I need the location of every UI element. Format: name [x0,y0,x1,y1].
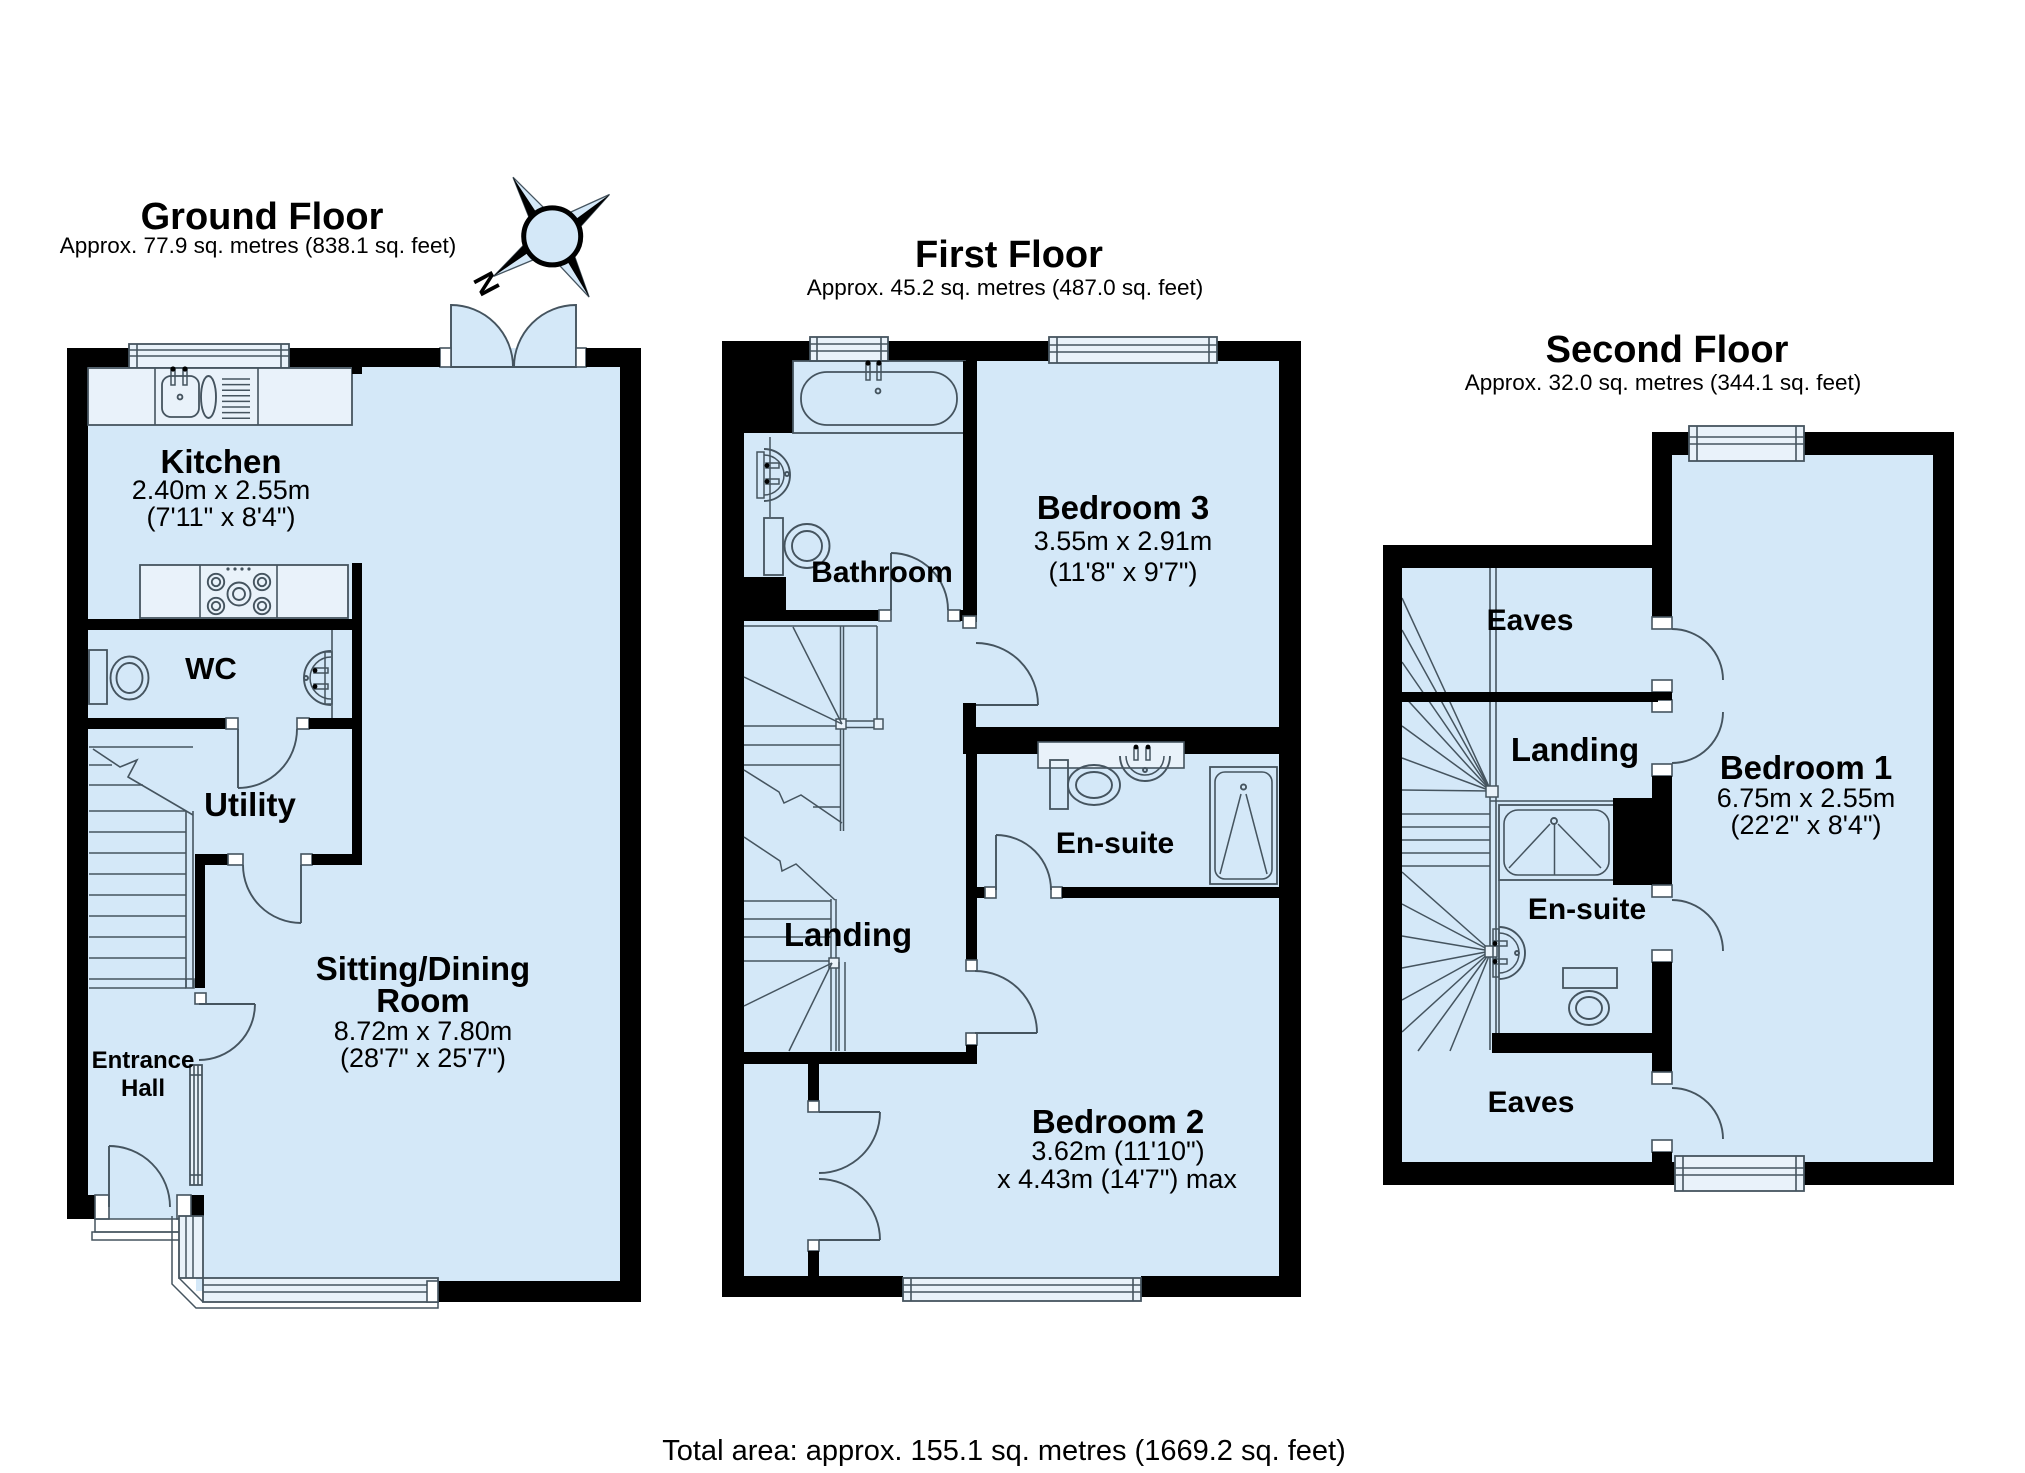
svg-text:Entrance: Entrance [92,1047,195,1074]
svg-text:En-suite: En-suite [1528,893,1646,926]
svg-text:Total area: approx. 155.1 sq.: Total area: approx. 155.1 sq. metres (16… [662,1435,1346,1467]
svg-text:WC: WC [185,651,237,686]
svg-text:Room: Room [376,982,470,1019]
svg-text:(7'11" x 8'4"): (7'11" x 8'4") [146,502,295,532]
svg-text:Eaves: Eaves [1488,1086,1575,1119]
svg-text:3.62m (11'10"): 3.62m (11'10") [1031,1136,1204,1166]
svg-text:Bathroom: Bathroom [811,556,953,589]
svg-text:(28'7" x 25'7"): (28'7" x 25'7") [340,1043,506,1073]
svg-text:Second Floor: Second Floor [1546,329,1789,371]
svg-text:3.55m x 2.91m: 3.55m x 2.91m [1034,526,1213,556]
svg-text:(11'8" x 9'7"): (11'8" x 9'7") [1048,557,1197,587]
svg-text:Bedroom 1: Bedroom 1 [1720,749,1892,786]
svg-text:Hall: Hall [121,1075,165,1102]
svg-text:6.75m x 2.55m: 6.75m x 2.55m [1717,783,1896,813]
svg-text:Approx. 45.2 sq. metres (487.0: Approx. 45.2 sq. metres (487.0 sq. feet) [807,275,1203,300]
svg-text:First Floor: First Floor [915,234,1103,276]
svg-text:Landing: Landing [1511,731,1639,768]
svg-text:(22'2" x 8'4"): (22'2" x 8'4") [1730,810,1881,840]
svg-text:Approx. 77.9 sq. metres (838.1: Approx. 77.9 sq. metres (838.1 sq. feet) [60,233,456,258]
svg-text:x 4.43m (14'7") max: x 4.43m (14'7") max [997,1164,1237,1194]
svg-text:Landing: Landing [784,916,912,953]
svg-text:Bedroom 2: Bedroom 2 [1032,1103,1204,1140]
svg-text:2.40m x 2.55m: 2.40m x 2.55m [132,475,311,505]
svg-text:Bedroom 3: Bedroom 3 [1037,489,1209,526]
svg-text:Eaves: Eaves [1487,604,1574,637]
svg-text:8.72m x 7.80m: 8.72m x 7.80m [334,1016,513,1046]
svg-text:En-suite: En-suite [1056,827,1174,860]
svg-text:Ground Floor: Ground Floor [141,196,384,238]
svg-text:Approx. 32.0 sq. metres (344.1: Approx. 32.0 sq. metres (344.1 sq. feet) [1465,370,1861,395]
svg-text:Utility: Utility [204,786,296,823]
